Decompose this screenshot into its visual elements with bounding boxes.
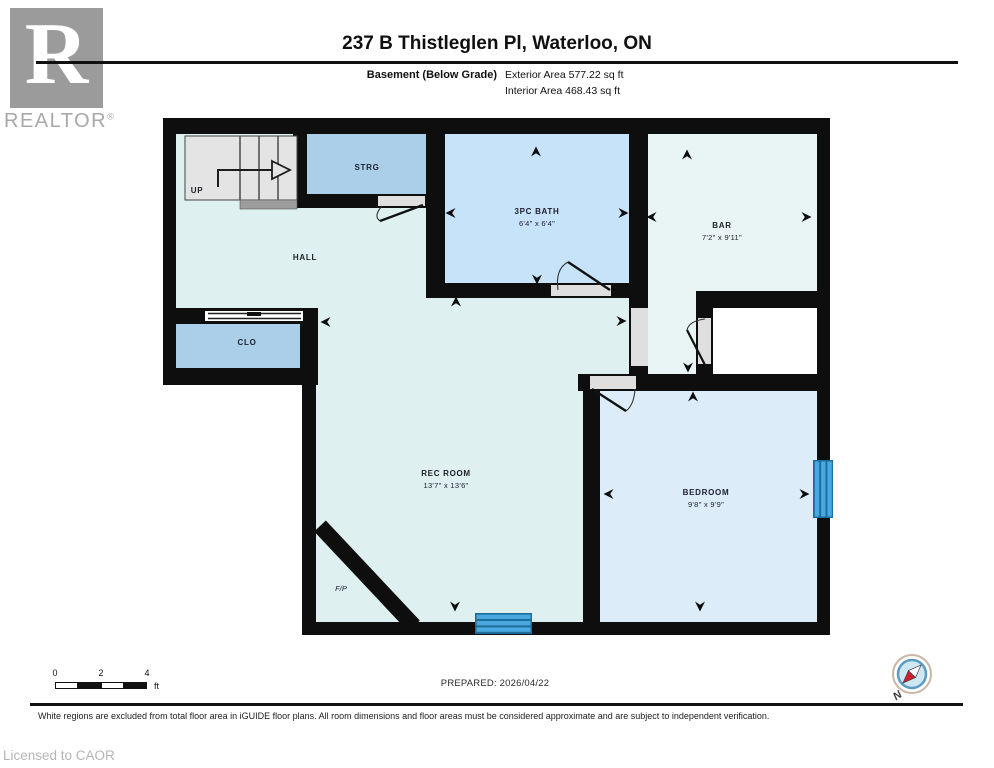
window-bedroom bbox=[813, 460, 833, 518]
floor-plan: UP STRG HALL CLO 3PC BATH 6'4" x 6'4" BA… bbox=[0, 0, 994, 768]
scale-segment bbox=[101, 682, 124, 689]
scale-tick-4: 4 bbox=[141, 668, 153, 678]
bedroom-dims: 9'8" x 9'9" bbox=[688, 500, 724, 509]
bar-label: BAR bbox=[712, 221, 731, 230]
fireplace-label: F/P bbox=[335, 584, 347, 593]
up-label: UP bbox=[191, 186, 204, 195]
bar-dims: 7'2" x 9'11" bbox=[702, 233, 742, 242]
scale-segment bbox=[55, 682, 78, 689]
bath-dims: 6'4" x 6'4" bbox=[519, 219, 555, 228]
rec-dims: 13'7" x 13'6" bbox=[423, 481, 468, 490]
disclaimer-text: White regions are excluded from total fl… bbox=[38, 711, 808, 721]
scale-unit: ft bbox=[154, 681, 159, 691]
prepared-date: PREPARED: 2026/04/22 bbox=[400, 678, 590, 689]
scale-tick-2: 2 bbox=[95, 668, 107, 678]
strg-label: STRG bbox=[354, 163, 379, 172]
hall-label: HALL bbox=[293, 253, 317, 262]
compass-icon: N bbox=[891, 655, 931, 703]
scale-segment bbox=[78, 682, 101, 689]
footer-divider bbox=[30, 703, 963, 706]
room-bar bbox=[631, 134, 817, 293]
stairs bbox=[185, 136, 297, 209]
scale-segment bbox=[124, 682, 147, 689]
window-recroom bbox=[475, 613, 532, 634]
room-bath bbox=[426, 134, 648, 298]
room-utility-white bbox=[712, 308, 817, 374]
bath-label: 3PC BATH bbox=[514, 207, 559, 216]
sliding-door bbox=[205, 311, 303, 321]
scale-tick-0: 0 bbox=[49, 668, 61, 678]
clo-label: CLO bbox=[238, 338, 257, 347]
rec-label: REC ROOM bbox=[421, 469, 471, 478]
licensed-to: Licensed to CAOR bbox=[3, 748, 115, 763]
bedroom-label: BEDROOM bbox=[683, 488, 730, 497]
floorplan-page: R REALTOR® 237 B Thistleglen Pl, Waterlo… bbox=[0, 0, 994, 768]
